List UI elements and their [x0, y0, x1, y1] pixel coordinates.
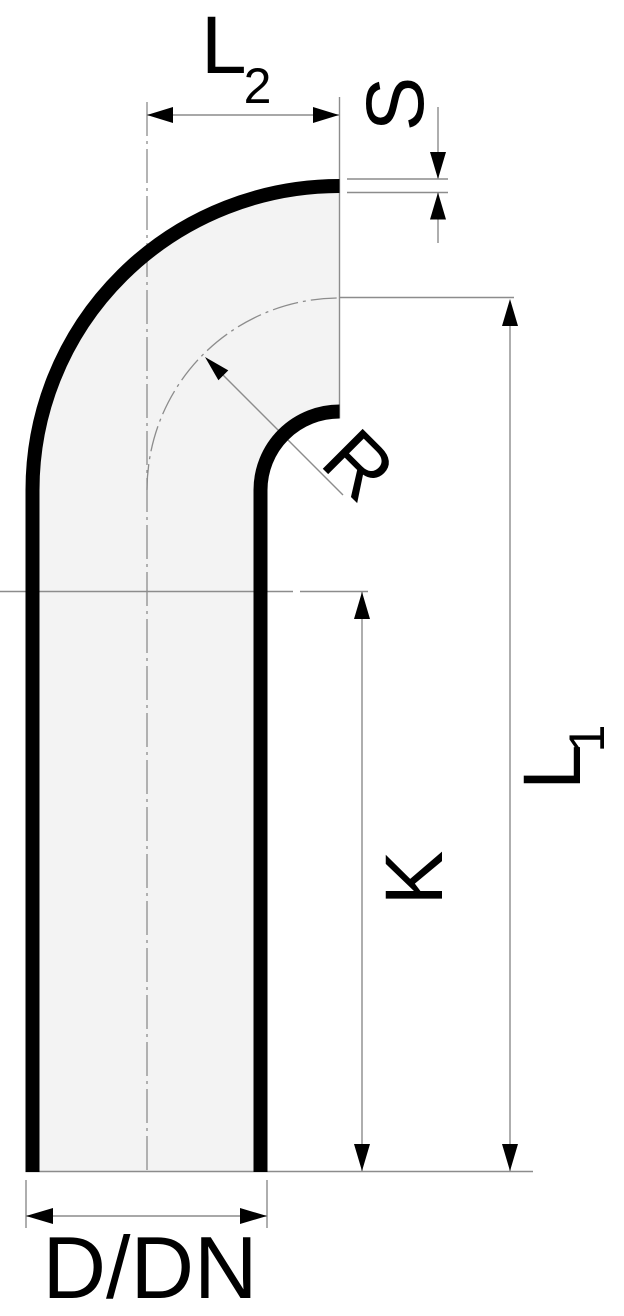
l2-arrow-left: [147, 107, 173, 123]
l1-arrow-top: [502, 299, 518, 326]
dimension-label-l2: L2: [201, 0, 271, 114]
l2-arrow-right: [313, 107, 339, 123]
dimension-label-d-dn: D/DN: [42, 1218, 257, 1316]
s-arrow-down: [430, 152, 446, 179]
pipe-bend-technical-drawing: L2 S R K L1 D/DN: [0, 0, 624, 1316]
s-arrow-up: [430, 193, 446, 220]
dimension-label-k: K: [369, 851, 460, 906]
dimension-label-s: S: [350, 77, 441, 132]
dimension-label-l1: L1: [507, 725, 615, 790]
k-arrow-bottom: [354, 1144, 370, 1171]
k-arrow-top: [354, 592, 370, 619]
inner-wall-outline: [261, 412, 340, 1173]
l1-arrow-bottom: [502, 1144, 518, 1171]
pipe-bend-diagram-canvas: L2 S R K L1 D/DN: [0, 0, 624, 1316]
dimension-label-r: R: [305, 412, 411, 518]
